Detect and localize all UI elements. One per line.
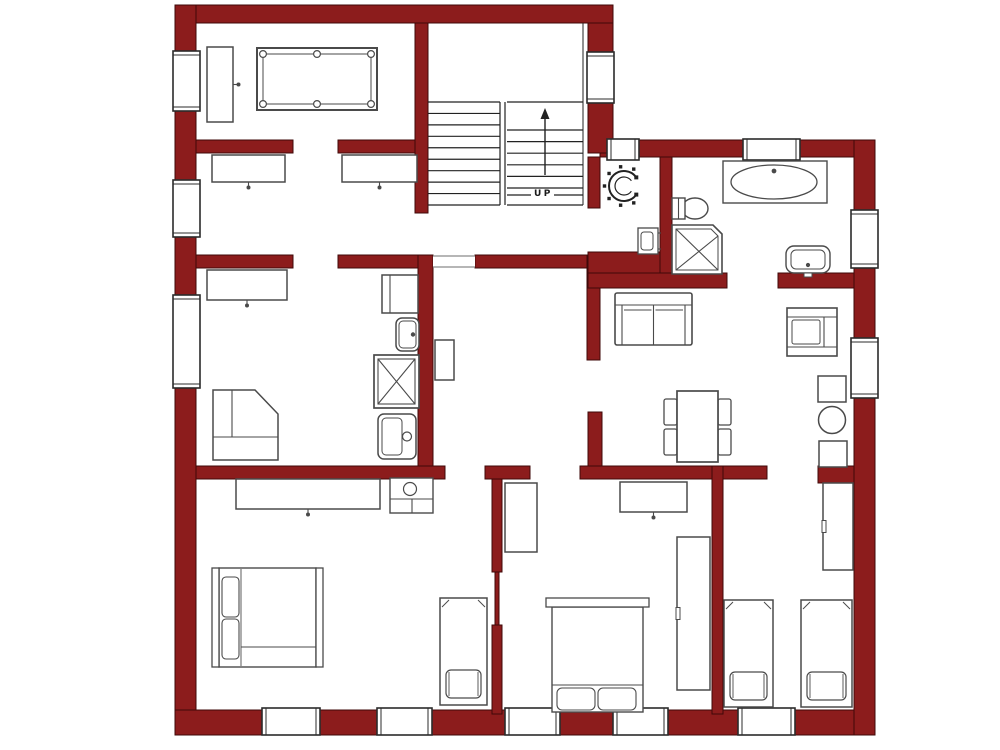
bathroom-toilet bbox=[672, 198, 708, 219]
pocket bbox=[314, 51, 321, 58]
toilet-mark bbox=[619, 204, 622, 207]
toilet-mark bbox=[632, 201, 635, 204]
sideboard bbox=[207, 270, 287, 307]
footboard bbox=[316, 568, 323, 667]
pocket bbox=[368, 101, 375, 108]
pocket bbox=[314, 101, 321, 108]
wall-room2-bottom-left bbox=[196, 255, 293, 268]
window bbox=[851, 210, 878, 268]
hall-shelf bbox=[435, 340, 454, 380]
pocket bbox=[368, 51, 375, 58]
window-frame bbox=[262, 708, 320, 735]
window bbox=[607, 139, 639, 160]
outline bbox=[641, 232, 653, 250]
side-table bbox=[818, 376, 846, 402]
detail-circle bbox=[807, 264, 810, 267]
toilet-bowl bbox=[682, 198, 708, 219]
kitchen-sink-small bbox=[396, 318, 419, 351]
pool-table bbox=[257, 48, 377, 110]
wall-room1-bottom-left bbox=[196, 140, 293, 153]
sideboard bbox=[212, 155, 285, 189]
window-frame bbox=[851, 210, 878, 268]
wall-bath-bottom-left bbox=[588, 273, 727, 288]
round-table bbox=[819, 407, 846, 434]
dresser bbox=[236, 479, 380, 516]
wall-bedrooms-top-c bbox=[580, 466, 767, 479]
wall-wc-left bbox=[588, 157, 600, 208]
pillow bbox=[557, 688, 595, 710]
window bbox=[377, 708, 432, 735]
pillow bbox=[222, 619, 239, 659]
bathroom-sink bbox=[786, 246, 830, 277]
wall-outer-top bbox=[175, 5, 613, 23]
outline bbox=[505, 483, 537, 552]
shower bbox=[672, 225, 722, 274]
wall-bed1-bed2-upper bbox=[492, 479, 502, 572]
dining-table bbox=[664, 391, 731, 462]
pillow bbox=[222, 577, 239, 617]
wall-outer-top-right bbox=[600, 140, 875, 157]
pocket bbox=[260, 51, 267, 58]
detail-circle bbox=[404, 483, 417, 496]
kitchen-corner-counter bbox=[213, 390, 278, 460]
outline bbox=[677, 537, 710, 690]
chair bbox=[664, 399, 677, 425]
window bbox=[173, 295, 200, 388]
window bbox=[738, 708, 795, 735]
single-bed bbox=[724, 600, 773, 707]
handle bbox=[676, 608, 680, 620]
wall-bed2-bed3 bbox=[712, 466, 723, 714]
wall-bed1-bed2-lower bbox=[492, 625, 502, 714]
floor-plan: UP bbox=[0, 0, 1000, 750]
window bbox=[173, 180, 200, 237]
detail-circle bbox=[411, 333, 414, 336]
outline bbox=[823, 483, 853, 570]
outline bbox=[263, 54, 371, 104]
detail-circle bbox=[772, 169, 776, 173]
headboard bbox=[546, 598, 649, 607]
toilet-mark bbox=[607, 197, 610, 200]
chair bbox=[718, 429, 731, 455]
wardrobe bbox=[676, 537, 710, 690]
bathtub bbox=[723, 161, 827, 203]
wall-bedrooms-top-a bbox=[196, 466, 445, 479]
outline bbox=[207, 47, 233, 122]
handle bbox=[822, 521, 826, 533]
sofa bbox=[615, 293, 692, 345]
wall-wc-bottom bbox=[588, 252, 660, 273]
wall-bath-bottom-right bbox=[778, 273, 854, 288]
tap bbox=[804, 273, 812, 277]
detail-circle bbox=[237, 83, 240, 86]
wc-toilet bbox=[603, 165, 638, 207]
window-frame bbox=[377, 708, 432, 735]
toilet-ring bbox=[615, 177, 631, 195]
sideboard bbox=[342, 155, 417, 189]
bedroom-cabinet bbox=[505, 483, 537, 552]
toilet-mark bbox=[619, 165, 622, 168]
outline bbox=[382, 418, 402, 455]
openings-layer bbox=[433, 256, 475, 267]
chair bbox=[718, 399, 731, 425]
detail-circle bbox=[247, 186, 250, 189]
toilet-tab bbox=[634, 175, 638, 179]
window-frame bbox=[173, 51, 200, 111]
outline bbox=[342, 155, 417, 182]
wall-wc-bath-divider bbox=[660, 157, 672, 273]
wall-bedrooms-top-d bbox=[818, 466, 854, 483]
detail-circle bbox=[652, 516, 655, 519]
double-bed bbox=[546, 598, 649, 712]
toilet-ring bbox=[609, 171, 636, 201]
stairs-layer: UP bbox=[428, 23, 583, 205]
washbasin-cabinet bbox=[390, 478, 433, 513]
wc-hand-basin bbox=[638, 228, 661, 254]
wall-living-left-lower bbox=[588, 412, 602, 472]
table bbox=[677, 391, 718, 462]
outline bbox=[819, 441, 847, 467]
window bbox=[173, 51, 200, 111]
window bbox=[262, 708, 320, 735]
toilet-tab bbox=[634, 193, 638, 197]
window-frame bbox=[738, 708, 795, 735]
wall-stairwell-left bbox=[415, 23, 428, 213]
outline bbox=[435, 340, 454, 380]
tall-cabinet bbox=[207, 47, 240, 122]
window bbox=[743, 139, 800, 160]
door-gap bbox=[433, 256, 475, 267]
window-frame bbox=[743, 139, 800, 160]
wall-hall-top bbox=[475, 255, 587, 268]
outline bbox=[620, 482, 687, 512]
window bbox=[587, 52, 614, 103]
pillow bbox=[730, 672, 767, 700]
door-opening-hall bbox=[433, 256, 475, 267]
outline bbox=[818, 376, 846, 402]
dresser bbox=[620, 482, 687, 519]
window-frame bbox=[173, 295, 200, 388]
detail-circle bbox=[378, 186, 381, 189]
pillow bbox=[598, 688, 636, 710]
stove bbox=[374, 355, 419, 408]
window bbox=[851, 338, 878, 398]
side-table bbox=[819, 441, 847, 467]
kitchen-cabinet bbox=[382, 275, 418, 313]
stairs-up-label: UP bbox=[534, 189, 553, 199]
faucet bbox=[403, 432, 412, 441]
toilet-mark bbox=[607, 172, 610, 175]
double-bed bbox=[212, 568, 323, 667]
armchair bbox=[787, 308, 837, 356]
detail-circle bbox=[246, 304, 249, 307]
outline bbox=[212, 155, 285, 182]
wall-kitchen-right bbox=[418, 255, 433, 478]
pocket bbox=[260, 101, 267, 108]
window-frame bbox=[851, 338, 878, 398]
wall-bed1-bed2-door bbox=[495, 572, 499, 625]
outline bbox=[213, 390, 278, 460]
pillow bbox=[446, 670, 481, 698]
wall-bedrooms-top-b bbox=[485, 466, 530, 479]
window-frame bbox=[173, 180, 200, 237]
wardrobe bbox=[822, 483, 853, 570]
detail-circle bbox=[307, 513, 310, 516]
outline bbox=[382, 275, 418, 313]
kitchen-sink bbox=[378, 414, 416, 459]
outline bbox=[207, 270, 287, 300]
window-frame bbox=[587, 52, 614, 103]
outline bbox=[792, 320, 820, 344]
outline bbox=[236, 479, 380, 509]
wall-room2-bottom-right bbox=[338, 255, 428, 268]
toilet-mark bbox=[632, 167, 635, 170]
stair-arrow-head bbox=[541, 108, 550, 119]
window-frame bbox=[607, 139, 639, 160]
pillow bbox=[807, 672, 846, 700]
chair bbox=[664, 429, 677, 455]
headboard bbox=[212, 568, 219, 667]
floor-plan-canvas: UP bbox=[0, 0, 1000, 750]
toilet-mark bbox=[603, 184, 606, 187]
detail-circle bbox=[819, 407, 846, 434]
single-bed bbox=[440, 598, 487, 705]
single-bed bbox=[801, 600, 852, 707]
